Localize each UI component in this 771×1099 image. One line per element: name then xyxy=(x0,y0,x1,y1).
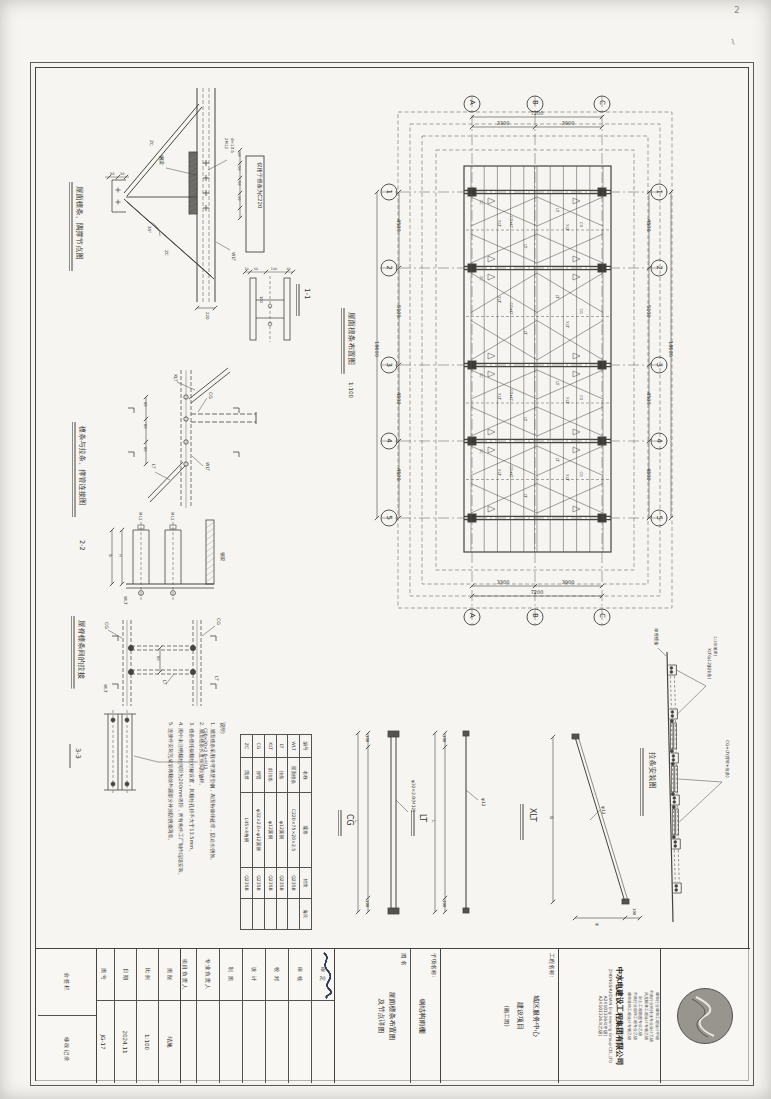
label-cg: CG xyxy=(104,622,109,629)
plan-label-xlt: XLT xyxy=(565,321,570,328)
mat-cell: 撑管 xyxy=(252,758,264,793)
label-bolt-d135: d=13.5 xyxy=(230,138,235,153)
detail33-title: 屋脊檩条间的拉接 xyxy=(77,620,86,680)
sig-label-6: 专业负责人 xyxy=(197,949,219,1001)
notes-heading: 说明: xyxy=(218,722,228,862)
qualification-line-2: 市政行业给排水专业设计乙级 xyxy=(649,949,655,1083)
grid-bubble-letter: A xyxy=(468,613,476,618)
qualification-line-5: 市政行业道路工程专业乙级 xyxy=(632,949,638,1083)
signature-scribble xyxy=(180,1001,196,1083)
install-title: 拉条安装图 xyxy=(648,752,657,789)
sig-label-3: 校 对 xyxy=(266,949,288,1001)
mat-cell: Q235B xyxy=(276,868,288,899)
grid-bubble-number: 1 xyxy=(385,190,393,194)
dim-side: 4500 xyxy=(646,468,652,481)
drawing-name-label: 图 名 xyxy=(399,953,407,1083)
plan-label-xlt: XLT xyxy=(497,469,502,476)
label-zc: ZC xyxy=(149,140,154,146)
subitem-label: 子项名称: xyxy=(429,953,437,1083)
mat-cell: LT xyxy=(276,735,288,758)
notes-text: 说明: 1. 屋面檩条采用冷弯薄壁型钢，表面热镀锌处理，防止生锈蚀。2. 屋面檩… xyxy=(164,722,228,862)
plan-label-xlt: XLT xyxy=(497,296,502,303)
dim-total-7200: 7200 xyxy=(531,589,544,595)
mat-cell: Q235B xyxy=(252,868,264,899)
mat-cell xyxy=(252,899,264,930)
label-bolt-2m12: 2M12 xyxy=(224,138,229,150)
dim-18600: 18600 xyxy=(668,341,674,357)
mat-cell: 拉条 xyxy=(276,758,288,793)
grid-bubble-number: 4 xyxy=(655,439,663,444)
project-name-label: 工程名称: xyxy=(547,953,555,1083)
label-lt: LT xyxy=(151,464,156,469)
grid-bubble-letter: B xyxy=(531,100,539,105)
subitem-name: 钢结构雨棚 xyxy=(417,949,427,1083)
plan-label-lt: LT xyxy=(523,331,528,336)
note-item-2: 2. 屋面檩条长度按实际放样。 xyxy=(197,722,207,862)
sig-label-5: 制 图 xyxy=(220,949,242,1001)
company-logo xyxy=(677,988,733,1044)
company-name-en: ZHONGSHUIDIAN Engineering Group CO.,LTD xyxy=(608,949,613,1083)
info-value-2: 1:100 xyxy=(137,1001,158,1083)
dim-60: 60 xyxy=(143,424,147,429)
dim-sec: 100 xyxy=(271,267,277,271)
label-beam: 钢梁 xyxy=(220,552,226,562)
plan-title: 屋面檩条布置图 xyxy=(347,312,356,365)
plan-label-lt: LT xyxy=(555,295,560,300)
member-title-lt: LT xyxy=(418,814,427,822)
mat-cell: WLT xyxy=(288,735,300,758)
plan-scale: 1:100 xyxy=(348,382,354,399)
dim-60: 60 xyxy=(156,656,160,661)
plan-label-cg: CG xyxy=(579,309,583,315)
signature-scribble xyxy=(197,1001,219,1083)
note-c220: 仅用于檩条为C220 xyxy=(256,162,263,209)
label-lt: LT xyxy=(162,680,167,685)
project-name-line1: 城区服务中心 xyxy=(531,949,541,1083)
qualification-line-3: 风景园林工程设计专项乙级 xyxy=(643,949,649,1083)
label-m12: M12 xyxy=(138,512,143,521)
dim-sec: 60 xyxy=(254,267,258,271)
dim-sec: 10 xyxy=(244,267,248,271)
mat-cell: φ12圆钢 xyxy=(276,793,288,868)
member-title-xlt: XLT xyxy=(528,808,537,822)
dim-side: 4500 xyxy=(396,392,402,405)
signature-scribble xyxy=(266,1001,288,1083)
dim-gusset: 30 xyxy=(120,172,124,176)
info-label-1: 图别 xyxy=(159,949,180,1001)
title-block-inner: 建筑行业建筑工程设计甲级市政行业给排水专业设计乙级风景园林工程设计专项乙级岩土工… xyxy=(36,948,750,1083)
grid-bubble-letter: B xyxy=(531,613,539,618)
plan-label-cg-lt: CG+LT xyxy=(509,303,513,316)
detail-mark-3-3: 3-3 xyxy=(74,748,82,759)
material-table: 编号名称规格材质备注WLT屋面檩条C220×75×20×2.5Q235BLT拉条… xyxy=(240,734,312,924)
label-wlt: WLT xyxy=(205,462,210,471)
company-logo-section xyxy=(660,949,750,1083)
plan-label-cg: CG xyxy=(579,395,583,401)
project-name-line2: 建设项目 xyxy=(515,949,525,1083)
mat-cell: L45×4角钢 xyxy=(241,793,253,868)
dim-side: 4500 xyxy=(396,468,402,481)
title-block: 建筑行业建筑工程设计甲级市政行业给排水专业设计乙级风景园林工程设计专项乙级岩土工… xyxy=(36,948,750,1082)
label-cg: CG xyxy=(216,618,221,625)
mat-cell: 斜拉条 xyxy=(264,758,276,793)
signature-scribble xyxy=(220,1001,242,1083)
label-slope: 1:10(坡度) xyxy=(713,636,718,657)
callout-lt: φ12 xyxy=(481,798,486,807)
mat-cell xyxy=(288,899,300,930)
dim-side: 5100 xyxy=(396,305,402,318)
signature-scribble xyxy=(243,1001,265,1083)
mat-header-cell: 规格 xyxy=(300,793,312,868)
dim-18600: 18600 xyxy=(374,341,380,357)
project-stage: (施工图) xyxy=(502,949,510,1083)
dim-B: B xyxy=(108,554,113,557)
signature-scribble xyxy=(289,1001,311,1083)
dim-bolt-gauge: 40 xyxy=(237,152,241,156)
plan-label-xlt: XLT xyxy=(497,393,502,400)
signatures-section: 审 定审 核校 对设 计制 图专业负责人项目负责人 xyxy=(180,949,334,1083)
dim-220: 220 xyxy=(205,312,210,320)
dim-sec: 60 xyxy=(286,267,290,271)
mat-header-cell: 材质 xyxy=(300,868,312,899)
label-lt: LT xyxy=(214,676,219,681)
plan-label-xlt: XLT xyxy=(565,474,570,481)
mat-cell xyxy=(264,899,276,930)
detail22-title: 檩条与拉条、撑管连接图 xyxy=(78,426,87,505)
mat-cell: XLT xyxy=(264,735,276,758)
mat-cell xyxy=(276,899,288,930)
label-xlt: XLT xyxy=(173,374,178,382)
dim-60: 60 xyxy=(143,402,147,407)
dim-bolt-gauge: 50 xyxy=(237,166,241,170)
sig-label-7: 项目负责人 xyxy=(180,949,196,1001)
mat-cell: Q235B xyxy=(264,868,276,899)
mat-header-cell: 编号 xyxy=(300,735,312,758)
label-beam: 钢梁 xyxy=(159,155,165,165)
dim-B: B xyxy=(549,816,554,819)
signature-scribble xyxy=(312,1001,334,1083)
plan-label-lt: LT xyxy=(523,417,528,422)
mat-cell: 屋面檩条 xyxy=(288,758,300,793)
info-value-1: 结施 xyxy=(159,1001,180,1083)
plan-label-xlt: XLT xyxy=(565,397,570,404)
sig-label-4: 设 计 xyxy=(243,949,265,1001)
grid-bubble-number: 3 xyxy=(655,363,663,367)
member-title-cg: CG xyxy=(345,814,354,826)
notes-block: 说明: 1. 屋面檩条采用冷弯薄壁型钢，表面热镀锌处理，防止生锈蚀。2. 屋面檩… xyxy=(164,722,228,862)
dim-gusset: 50 xyxy=(110,172,114,176)
dim-side: 4500 xyxy=(646,392,652,405)
label-wlt: WLT xyxy=(231,252,236,261)
dim-total-7200: 7200 xyxy=(531,110,544,116)
info-label-2: 比例 xyxy=(137,949,158,1001)
grid-bubble-number: 2 xyxy=(655,266,663,270)
qualification-line-1: 建筑行业建筑工程设计甲级 xyxy=(654,949,660,1083)
plan-label-cg-lt: CG+LT xyxy=(509,466,513,479)
plan-label-cg: CG xyxy=(579,472,583,478)
plan-label-zc: ZC xyxy=(479,449,483,454)
info-label-4: 图号 xyxy=(96,949,114,1001)
note-item-3: 3. 檩条檩托板螺栓对称设置，其螺栓孔径不大于13.5mm。 xyxy=(186,722,196,862)
mat-cell: C220×75×20×2.5 xyxy=(288,793,300,868)
plan-label-lt: LT xyxy=(555,208,560,213)
dim-bolt-gauge: 50 xyxy=(237,181,241,185)
mat-cell: φ12圆钢 xyxy=(264,793,276,868)
callout-install-xlt: XLT(φ12斜拉条) xyxy=(706,648,712,679)
drawing-name-line1: 屋面檩条布置图 xyxy=(387,949,397,1083)
dim-side: 5100 xyxy=(646,305,652,318)
label-wlt: WLT xyxy=(123,596,128,605)
sheet-info-section: 图别结施比例1:100日期2024.11图号JG-17 xyxy=(96,949,180,1083)
plan-label-lt: LT xyxy=(555,381,560,386)
label-cg: CG xyxy=(208,392,213,399)
grid-bubble-letter: A xyxy=(468,100,476,105)
mat-header-cell: 名称 xyxy=(300,758,312,793)
mat-cell: 隅撑 xyxy=(241,758,253,793)
label-angle: 35° xyxy=(147,226,152,233)
qualification-line-4: 岩土工程勘察专业乙级 xyxy=(638,949,644,1083)
dim-3300: 3300 xyxy=(497,120,510,126)
dim-60: 60 xyxy=(143,447,147,452)
label-zc: ZC xyxy=(164,250,169,256)
huiqian-section: 会签栏 修改记录 xyxy=(38,949,96,1083)
mat-cell xyxy=(241,899,253,930)
detail11-title: 屋面檩条、隅撑节点图 xyxy=(75,186,84,260)
label-ridge: 屋脊檩条 xyxy=(654,628,659,646)
mat-cell: Q235B xyxy=(241,868,253,899)
mat-cell: φ32×2.0+φ12圆钢 xyxy=(252,793,264,868)
dim-H: H xyxy=(595,922,598,927)
dim-bolt-gauge: 40 xyxy=(237,196,241,200)
label-wlt: WLT xyxy=(103,684,108,693)
note-item-5: 5. 连接件安装完成后将螺纹外露部分补涂防锈漆两道。 xyxy=(166,722,176,862)
dim-H: H xyxy=(118,554,123,557)
huiqian-label: 会签栏 xyxy=(38,949,96,1016)
qualification-line-6: 建筑装饰工程设计专项乙级 xyxy=(626,949,632,1083)
plan-label-xlt: XLT xyxy=(497,220,502,227)
dim-100: 100 xyxy=(632,908,637,916)
drawing-sheet: 2 ~ AABBCC112233445572007200330039003300… xyxy=(0,0,771,1099)
material-table-inner: 编号名称规格材质备注WLT屋面檩条C220×75×20×2.5Q235BLT拉条… xyxy=(240,734,312,924)
note-item-1: 1. 屋面檩条采用冷弯薄壁型钢，表面热镀锌处理，防止生锈蚀。 xyxy=(207,722,217,862)
dim-100: 100 xyxy=(442,735,447,743)
dim-100: 100 xyxy=(442,900,447,908)
info-value-3: 2024.11 xyxy=(115,1001,136,1083)
plan-label-cg-lt: CG+LT xyxy=(509,389,513,402)
plan-label-cg-lt: CG+LT xyxy=(509,216,513,229)
company-info-section: 建筑行业建筑工程设计甲级市政行业给排水专业设计乙级风景园林工程设计专项乙级岩土工… xyxy=(558,949,660,1083)
grid-bubble-number: 3 xyxy=(385,363,393,367)
dim-100: 100 xyxy=(365,900,370,908)
grid-bubble-number: 1 xyxy=(655,190,663,194)
drawing-name-section: 子项名称: 钢结构雨棚 图 名 屋面檩条布置图 及节点详图 xyxy=(334,949,440,1083)
plan-label-cg: CG xyxy=(579,222,583,228)
plan-label-lt: LT xyxy=(523,244,528,249)
callout-cg: φ32×2.0(M12) xyxy=(411,780,416,812)
dim-3900: 3900 xyxy=(562,579,575,585)
logo-wave-icon xyxy=(678,989,732,1043)
sig-label-2: 审 核 xyxy=(289,949,311,1001)
mat-cell: CG xyxy=(252,735,264,758)
plan-label-zc: ZC xyxy=(479,200,483,205)
grid-bubble-letter: C xyxy=(598,100,606,105)
grid-bubble-number: 4 xyxy=(385,439,393,444)
plan-label-zc: ZC xyxy=(479,276,483,281)
revision-label: 修改记录 xyxy=(38,1016,96,1083)
dim-side: 4500 xyxy=(646,219,652,232)
project-name-section: 工程名称: 城区服务中心 建设项目 (施工图) xyxy=(440,949,558,1083)
dim-side: 4500 xyxy=(396,219,402,232)
drawing-name-line2: 及节点详图 xyxy=(376,949,386,1083)
dim-3300: 3300 xyxy=(497,579,510,585)
note-item-4: 4. 图中未注明螺栓间距为200mm等距，所有构件工厂制作现场安装。 xyxy=(176,722,186,862)
mat-header-cell: 备注 xyxy=(300,899,312,930)
detail-mark-2-2: 2-2 xyxy=(78,540,86,551)
dim-3900: 3900 xyxy=(562,120,575,126)
detail-mark-1-1: 1-1 xyxy=(303,288,311,299)
info-value-4: JG-17 xyxy=(96,1001,114,1083)
plan-label-xlt: XLT xyxy=(565,224,570,231)
grid-bubble-number: 5 xyxy=(385,516,393,520)
plan-label-lt: LT xyxy=(555,458,560,463)
grid-bubble-number: 5 xyxy=(655,516,663,520)
mat-cell: ZC xyxy=(241,735,253,758)
callout-xlt: φ12 xyxy=(601,806,606,815)
linework-layer: AABBCC1122334455720072003300390033003900… xyxy=(0,0,771,1099)
callout-install-cg: CG+LT(撑管+拉条) xyxy=(724,740,730,778)
grid-bubble-letter: C xyxy=(598,613,606,618)
company-name-cn: 中水电建设工程集团有限公司 xyxy=(614,949,624,1083)
label-m12: M12 xyxy=(170,512,175,521)
dim-100: 100 xyxy=(259,296,263,304)
plan-label-lt: LT xyxy=(523,494,528,499)
info-label-3: 日期 xyxy=(115,949,136,1001)
mat-cell: Q235B xyxy=(288,868,300,899)
plan-label-zc: ZC xyxy=(479,373,483,378)
dim-100: 100 xyxy=(365,735,370,743)
grid-bubble-number: 2 xyxy=(385,266,393,270)
cert-number-2: A241013263(乙级) xyxy=(598,949,603,1083)
